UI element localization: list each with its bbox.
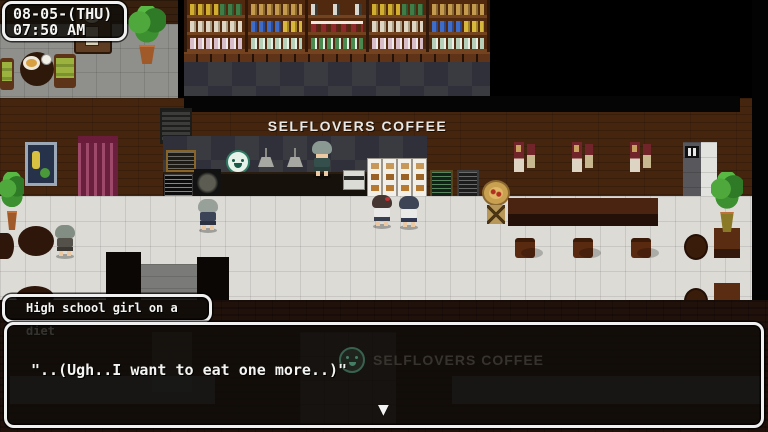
cafe-chair (629, 232, 653, 258)
round-stool (684, 234, 708, 260)
poster (514, 142, 524, 172)
pizza (489, 187, 503, 199)
bottle-row (372, 4, 424, 15)
wall-posters (630, 142, 652, 174)
plant-leaves (711, 172, 743, 214)
character-legs (316, 171, 328, 176)
round-table (0, 233, 14, 259)
framed-menu-board (166, 150, 196, 172)
character-hair (399, 196, 419, 209)
character-torso (314, 158, 330, 167)
bottle-row (190, 4, 242, 15)
right-shadow-edge (752, 0, 768, 300)
potted-plant (711, 172, 743, 232)
bottle-row (311, 4, 363, 15)
round-table-with-food (20, 52, 54, 86)
poster (527, 144, 535, 168)
pastry (416, 185, 424, 191)
character-schoolgirl-customer[interactable] (399, 196, 419, 227)
bottle-row (311, 38, 363, 49)
continue-arrow-icon[interactable]: ▼ (378, 403, 389, 417)
red-curtain (78, 136, 118, 202)
chalkboard-menu (430, 170, 453, 198)
bottle-row (311, 21, 363, 32)
logo-eye (355, 356, 358, 359)
logo-eye (241, 159, 244, 162)
cafe-sign: SELFLOVERS COFFEE (245, 117, 470, 135)
speaker-name-box: High school girl on a diet (2, 294, 212, 323)
poster (572, 142, 582, 172)
wall-posters (514, 142, 536, 174)
character-torso (401, 209, 417, 218)
coffee-cup (41, 54, 52, 65)
dialogue-box[interactable]: SELFLOVERS COFFEE "..(Ugh..I want to eat… (4, 322, 764, 428)
character-legs (376, 221, 388, 226)
chair-cushion (56, 58, 74, 78)
shelf-bay (426, 0, 490, 52)
cafe-chair (513, 232, 537, 258)
chair-seat (515, 238, 535, 258)
counter-bench (508, 198, 658, 226)
pastry (401, 174, 409, 180)
bottle-row (251, 4, 303, 15)
poster (630, 142, 640, 172)
cafe-logo-face-icon (226, 150, 250, 174)
character-hair (198, 199, 218, 212)
lamp-shade (287, 157, 303, 167)
shelf-bay (366, 0, 427, 52)
painting-detail (32, 151, 40, 169)
logo-eye (232, 159, 235, 162)
shadow-band (184, 96, 740, 112)
pastry-display-case (412, 158, 427, 198)
cafe-chair (0, 58, 14, 90)
datetime-hud: 08-05-(THU) 07:50 AM (2, 1, 127, 41)
food-item (26, 59, 37, 67)
plant-leaves (0, 172, 24, 213)
register-display (344, 176, 364, 180)
poster (643, 144, 651, 168)
plant-pot (719, 212, 735, 232)
bottle-row (372, 38, 424, 49)
poster (585, 144, 593, 168)
lamp-shade (258, 157, 274, 167)
pastry (371, 185, 379, 191)
pastry (371, 163, 379, 169)
wall-painting (25, 142, 57, 186)
cafe-chair (571, 232, 595, 258)
pastry (386, 174, 394, 180)
potted-plant (128, 6, 166, 64)
bottle-row (372, 21, 424, 32)
shelf-bay (184, 0, 245, 52)
bottle-row (251, 38, 303, 49)
table-stand (487, 205, 505, 224)
chair-seat (631, 238, 651, 258)
hud-date: 08-05-(THU) (13, 6, 124, 22)
bottle-shelves (184, 0, 490, 52)
pastry-display-case (397, 158, 412, 198)
pastry-display-case (367, 158, 382, 198)
square-table (714, 228, 740, 258)
dialogue-text: "..(Ugh..I want to eat one more..)" (31, 361, 347, 379)
character-torso (374, 208, 390, 217)
watermark-text: SELFLOVERS COFFEE (373, 352, 544, 368)
plant-leaves (128, 6, 166, 47)
restroom-figure (693, 148, 696, 156)
hair-bow (385, 197, 390, 201)
pastry (371, 174, 379, 180)
round-table (18, 226, 54, 256)
pastry (401, 163, 409, 169)
shelf-bay (245, 0, 306, 52)
pastry (416, 174, 424, 180)
character-legs (403, 222, 415, 227)
restroom-figure (688, 148, 691, 156)
character-torso (57, 238, 73, 247)
cafe-chair (54, 54, 76, 88)
character-hair (372, 195, 392, 208)
pastry (386, 163, 394, 169)
pastry (416, 163, 424, 169)
character-schoolgirl-customer[interactable] (372, 195, 392, 226)
restroom-sign-icon (685, 146, 699, 158)
plant-pot (138, 45, 157, 64)
lamp-stem (294, 148, 296, 157)
painting-detail (40, 168, 50, 178)
character-legs (59, 251, 71, 256)
hanging-lamp-icon (258, 148, 274, 170)
hanging-lamp-icon (287, 148, 303, 170)
character-schoolgirl-at-menu[interactable] (198, 199, 218, 230)
shelf-bay (305, 0, 366, 52)
character-legs (202, 225, 214, 230)
character-barista[interactable] (312, 141, 332, 176)
lamp-stem (265, 148, 267, 157)
game-screen: SELFLOVERS COFFEE (0, 0, 768, 432)
plant-pot (6, 211, 18, 230)
chair-seat (573, 238, 593, 258)
logo-mouth (349, 362, 356, 366)
logo-eye (346, 356, 349, 359)
bottle-row (432, 38, 484, 49)
bottle-row (190, 38, 242, 49)
chalkboard-menu (457, 170, 479, 199)
bottle-row (190, 21, 242, 32)
pastry (401, 185, 409, 191)
hud-time: 07:50 AM (13, 22, 124, 38)
bottle-row (432, 4, 484, 15)
bottle-row (432, 21, 484, 32)
bottle-row (251, 21, 303, 32)
checkered-wall-upper (184, 62, 490, 96)
character-torso (200, 212, 216, 221)
pastry-display-case (382, 158, 397, 198)
chair-cushion (2, 62, 12, 81)
pizza-display-table (482, 180, 510, 225)
pastry (386, 185, 394, 191)
character-hair (312, 141, 332, 154)
cash-register (343, 170, 365, 190)
dialog-watermark: SELFLOVERS COFFEE (339, 347, 544, 373)
potted-plant (0, 172, 24, 230)
character-hair (55, 225, 75, 238)
logo-mouth (234, 163, 242, 168)
wall-posters (572, 142, 594, 174)
character-high-school-girl-speaker[interactable] (55, 225, 75, 256)
